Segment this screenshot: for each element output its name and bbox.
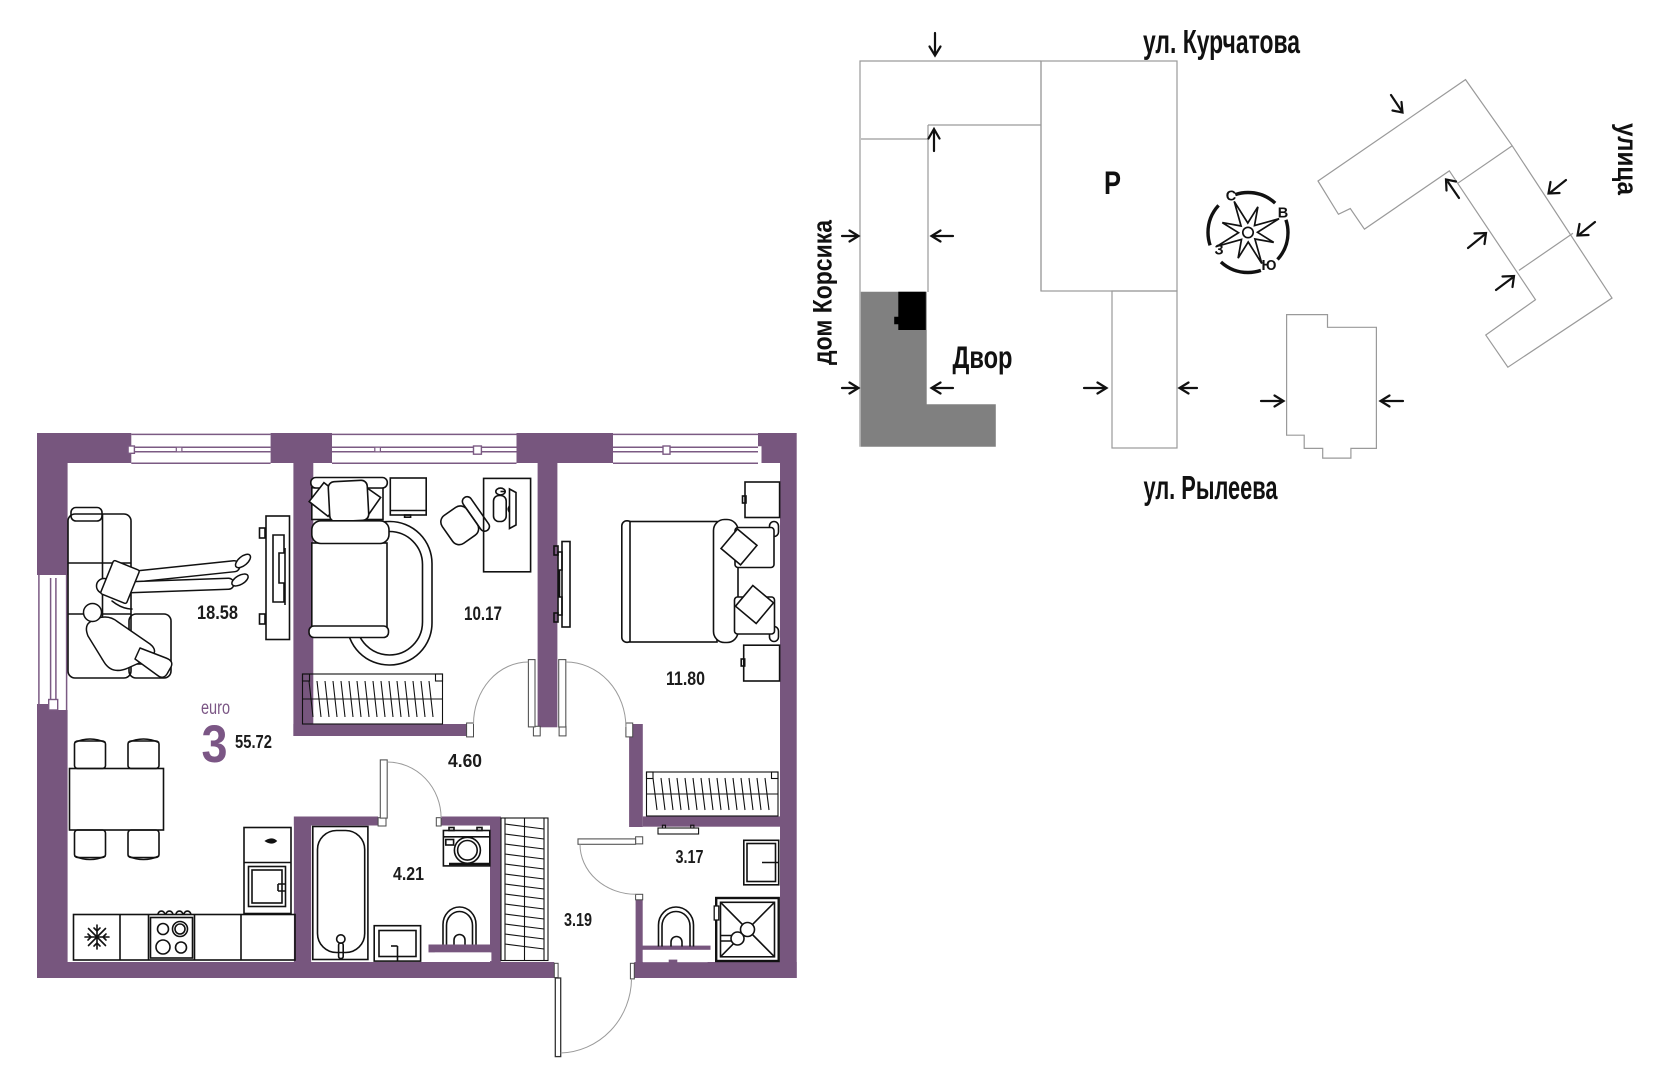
svg-text:Двор: Двор bbox=[953, 339, 1013, 375]
svg-text:Ю: Ю bbox=[1262, 258, 1277, 274]
svg-text:10.17: 10.17 bbox=[464, 603, 502, 625]
svg-text:11.80: 11.80 bbox=[666, 668, 705, 690]
svg-text:Р: Р bbox=[1104, 165, 1121, 201]
svg-text:3.19: 3.19 bbox=[564, 910, 592, 930]
svg-text:улица: улица bbox=[1612, 123, 1643, 195]
svg-text:3.17: 3.17 bbox=[676, 847, 704, 867]
svg-text:3: 3 bbox=[202, 715, 228, 774]
svg-text:4.21: 4.21 bbox=[393, 864, 424, 884]
svg-text:ул. Курчатова: ул. Курчатова bbox=[1143, 23, 1300, 60]
svg-text:ул. Рылеева: ул. Рылеева bbox=[1144, 469, 1278, 506]
svg-text:С: С bbox=[1226, 189, 1237, 205]
svg-text:З: З bbox=[1214, 243, 1223, 259]
svg-text:4.60: 4.60 bbox=[448, 751, 482, 771]
svg-text:дом Корсика: дом Корсика bbox=[808, 220, 838, 365]
svg-text:55.72: 55.72 bbox=[235, 732, 272, 752]
svg-text:В: В bbox=[1278, 206, 1288, 222]
svg-text:18.58: 18.58 bbox=[197, 602, 238, 624]
